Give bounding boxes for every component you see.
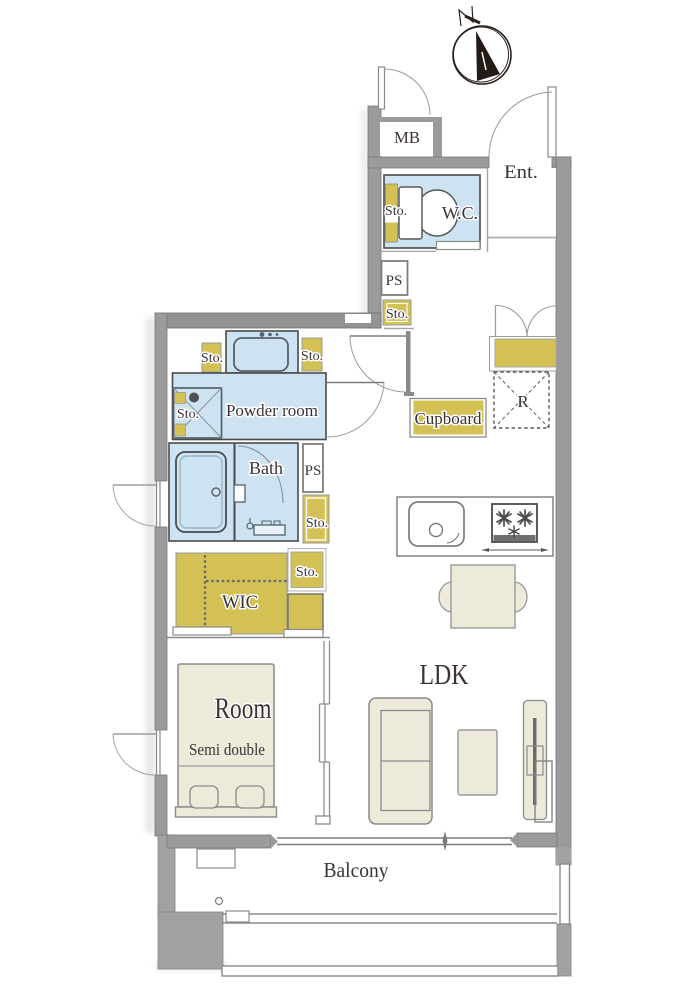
svg-text:WIC: WIC [222,592,258,613]
svg-text:MB: MB [394,128,420,147]
svg-text:PS: PS [305,463,322,479]
svg-text:R: R [517,392,529,411]
svg-text:Powder room: Powder room [226,401,318,420]
svg-text:Sto.: Sto. [201,351,223,366]
svg-text:Sto.: Sto. [306,516,328,531]
svg-text:Cupboard: Cupboard [414,409,482,428]
svg-text:Balcony: Balcony [324,858,389,882]
svg-text:Semi double: Semi double [189,740,265,759]
svg-text:Sto.: Sto. [177,407,199,422]
svg-text:Sto.: Sto. [301,349,323,364]
svg-text:Sto.: Sto. [386,307,408,322]
svg-text:Bath: Bath [249,458,283,478]
svg-text:Sto.: Sto. [385,204,407,219]
svg-text:W.C.: W.C. [442,203,478,223]
svg-text:Sto.: Sto. [296,565,318,580]
svg-text:LDK: LDK [420,659,469,691]
svg-text:Room: Room [215,692,272,725]
svg-text:PS: PS [386,273,403,289]
svg-text:Ent.: Ent. [504,162,538,183]
